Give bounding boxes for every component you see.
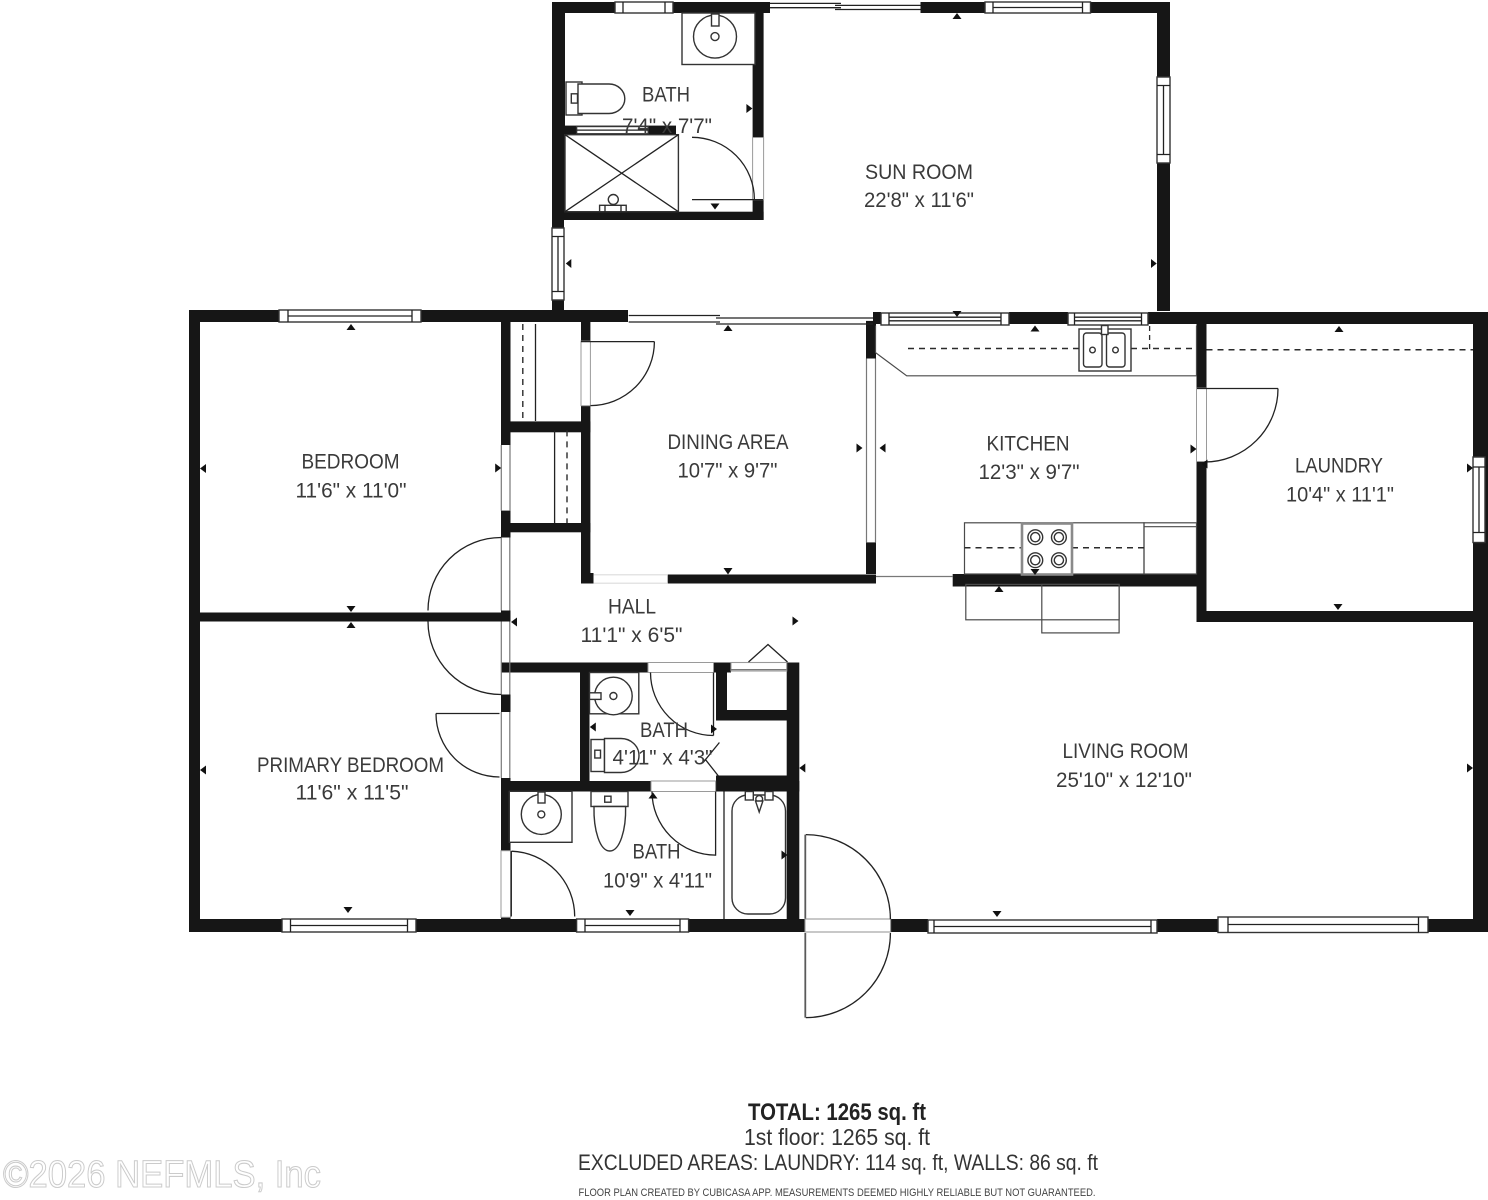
svg-text:11'6" x 11'5": 11'6" x 11'5" xyxy=(296,781,409,805)
svg-text:KITCHEN: KITCHEN xyxy=(987,433,1070,456)
svg-text:10'4" x 11'1": 10'4" x 11'1" xyxy=(1286,483,1394,507)
svg-text:BATH: BATH xyxy=(642,84,690,107)
svg-text:BEDROOM: BEDROOM xyxy=(302,451,400,474)
svg-text:11'6" x 11'0": 11'6" x 11'0" xyxy=(296,479,407,503)
svg-text:©2026 NEFMLS, Inc: ©2026 NEFMLS, Inc xyxy=(3,1154,321,1196)
svg-text:DINING AREA: DINING AREA xyxy=(668,431,789,454)
svg-text:HALL: HALL xyxy=(608,596,656,619)
svg-text:7'4" x 7'7": 7'4" x 7'7" xyxy=(622,114,712,138)
svg-text:FLOOR PLAN CREATED BY CUBICASA: FLOOR PLAN CREATED BY CUBICASA APP. MEAS… xyxy=(579,1187,1096,1199)
svg-text:12'3" x 9'7": 12'3" x 9'7" xyxy=(979,460,1080,484)
svg-text:22'8" x 11'6": 22'8" x 11'6" xyxy=(864,188,974,212)
svg-text:25'10" x 12'10": 25'10" x 12'10" xyxy=(1056,768,1192,792)
svg-text:10'9" x 4'11": 10'9" x 4'11" xyxy=(603,869,712,893)
svg-text:10'7" x 9'7": 10'7" x 9'7" xyxy=(678,459,778,483)
svg-text:BATH: BATH xyxy=(633,841,681,864)
svg-text:1st floor: 1265 sq. ft: 1st floor: 1265 sq. ft xyxy=(744,1124,931,1150)
svg-text:EXCLUDED AREAS: LAUNDRY: 114 s: EXCLUDED AREAS: LAUNDRY: 114 sq. ft, WAL… xyxy=(578,1150,1099,1175)
svg-text:LAUNDRY: LAUNDRY xyxy=(1295,455,1383,478)
svg-text:SUN ROOM: SUN ROOM xyxy=(865,161,973,184)
svg-text:TOTAL: 1265 sq. ft: TOTAL: 1265 sq. ft xyxy=(748,1099,926,1126)
svg-text:LIVING ROOM: LIVING ROOM xyxy=(1063,740,1189,763)
svg-text:PRIMARY BEDROOM: PRIMARY BEDROOM xyxy=(257,754,444,777)
svg-text:4'11" x 4'3": 4'11" x 4'3" xyxy=(613,746,713,770)
svg-text:11'1" x 6'5": 11'1" x 6'5" xyxy=(581,623,683,647)
svg-text:BATH: BATH xyxy=(640,719,688,742)
